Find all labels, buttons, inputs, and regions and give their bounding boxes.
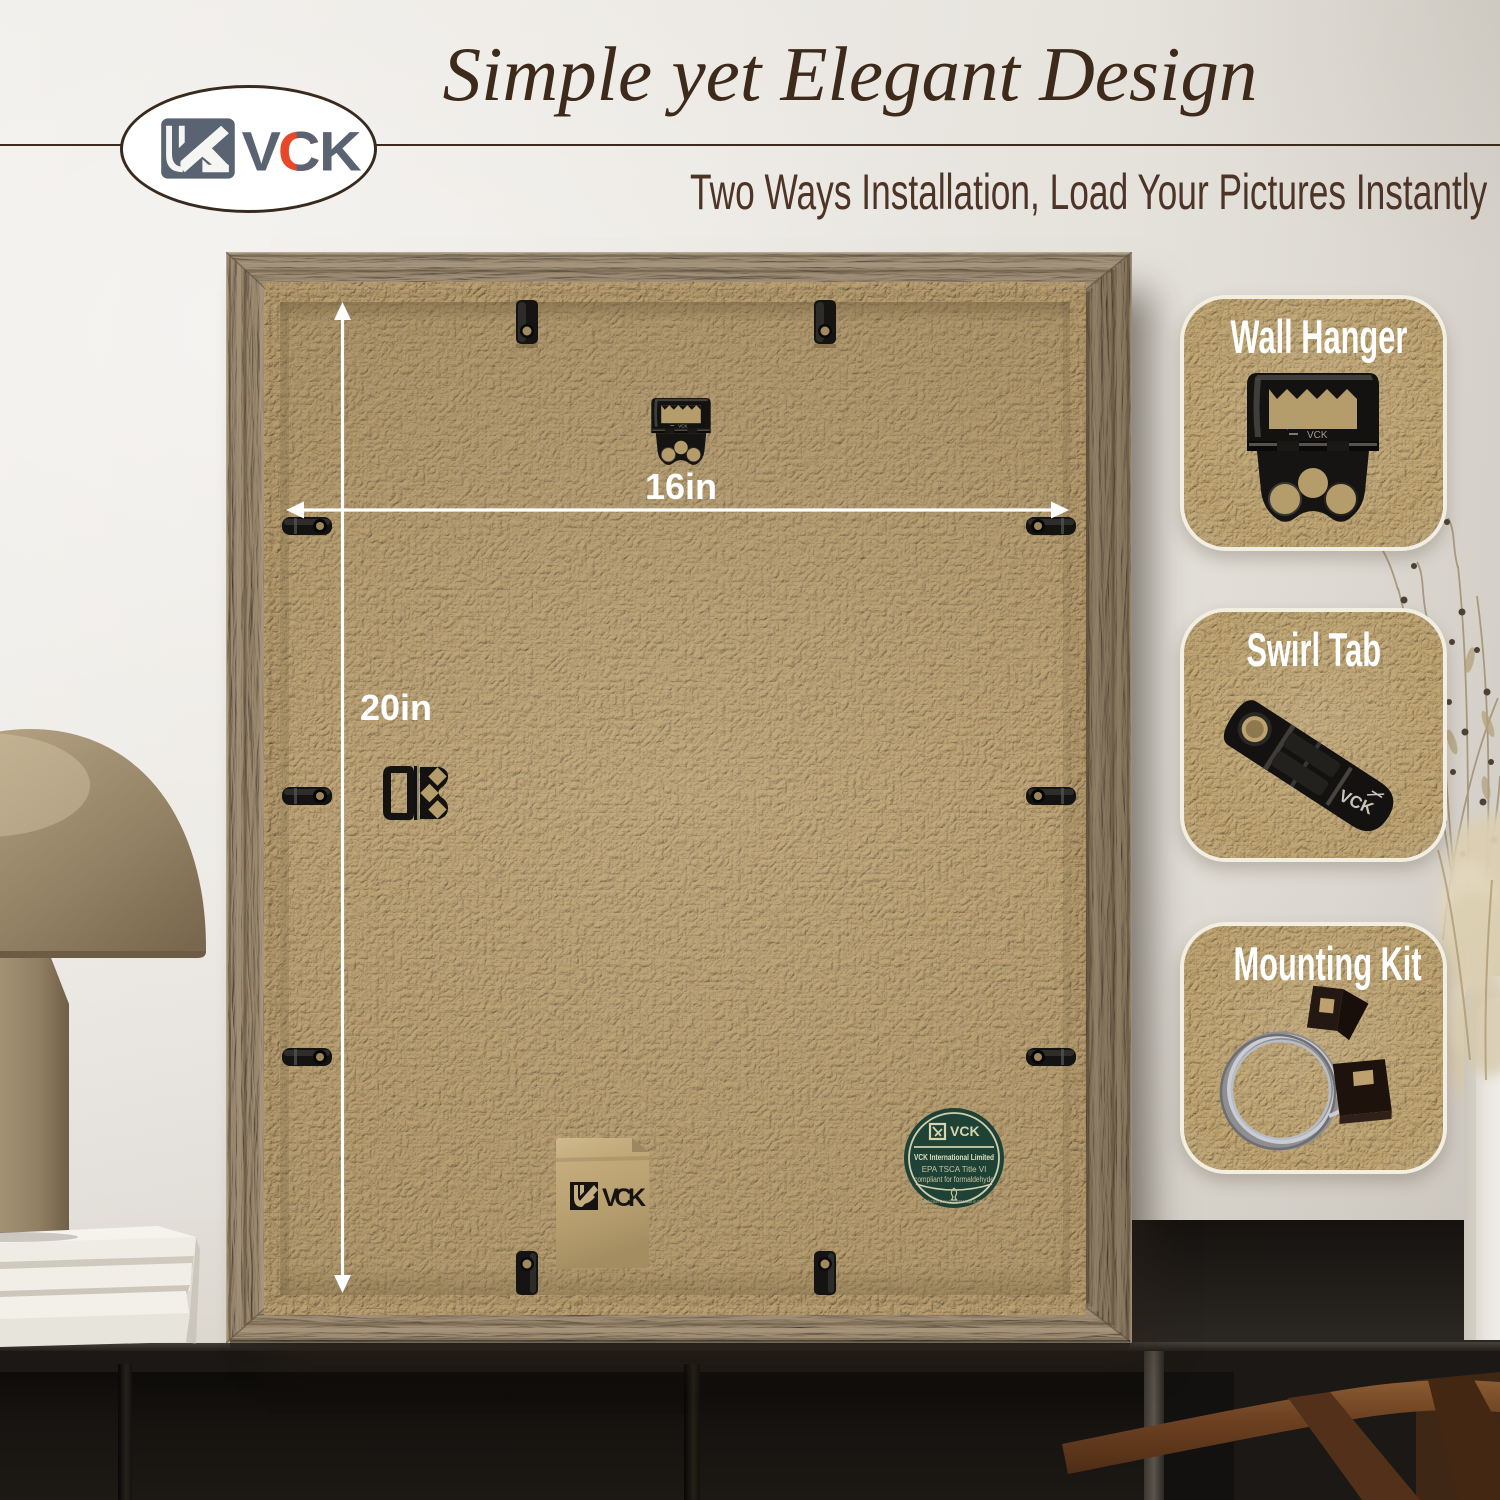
svg-text:K: K bbox=[319, 121, 361, 183]
svg-text:20in: 20in bbox=[360, 687, 432, 728]
svg-text:VCK: VCK bbox=[602, 1184, 646, 1212]
svg-text:VCK: VCK bbox=[950, 1123, 980, 1139]
svg-text:16in: 16in bbox=[645, 466, 717, 507]
svg-text:VCK International Limited: VCK International Limited bbox=[914, 1152, 994, 1162]
svg-text:Production Date 07/2023 Made: Production Date 07/2023 Made in China bbox=[921, 1199, 987, 1204]
svg-text:V: V bbox=[242, 121, 281, 183]
svg-text:EPA TSCA Title VI: EPA TSCA Title VI bbox=[922, 1165, 987, 1174]
svg-text:compliant for formaldehyde: compliant for formaldehyde bbox=[914, 1175, 994, 1184]
